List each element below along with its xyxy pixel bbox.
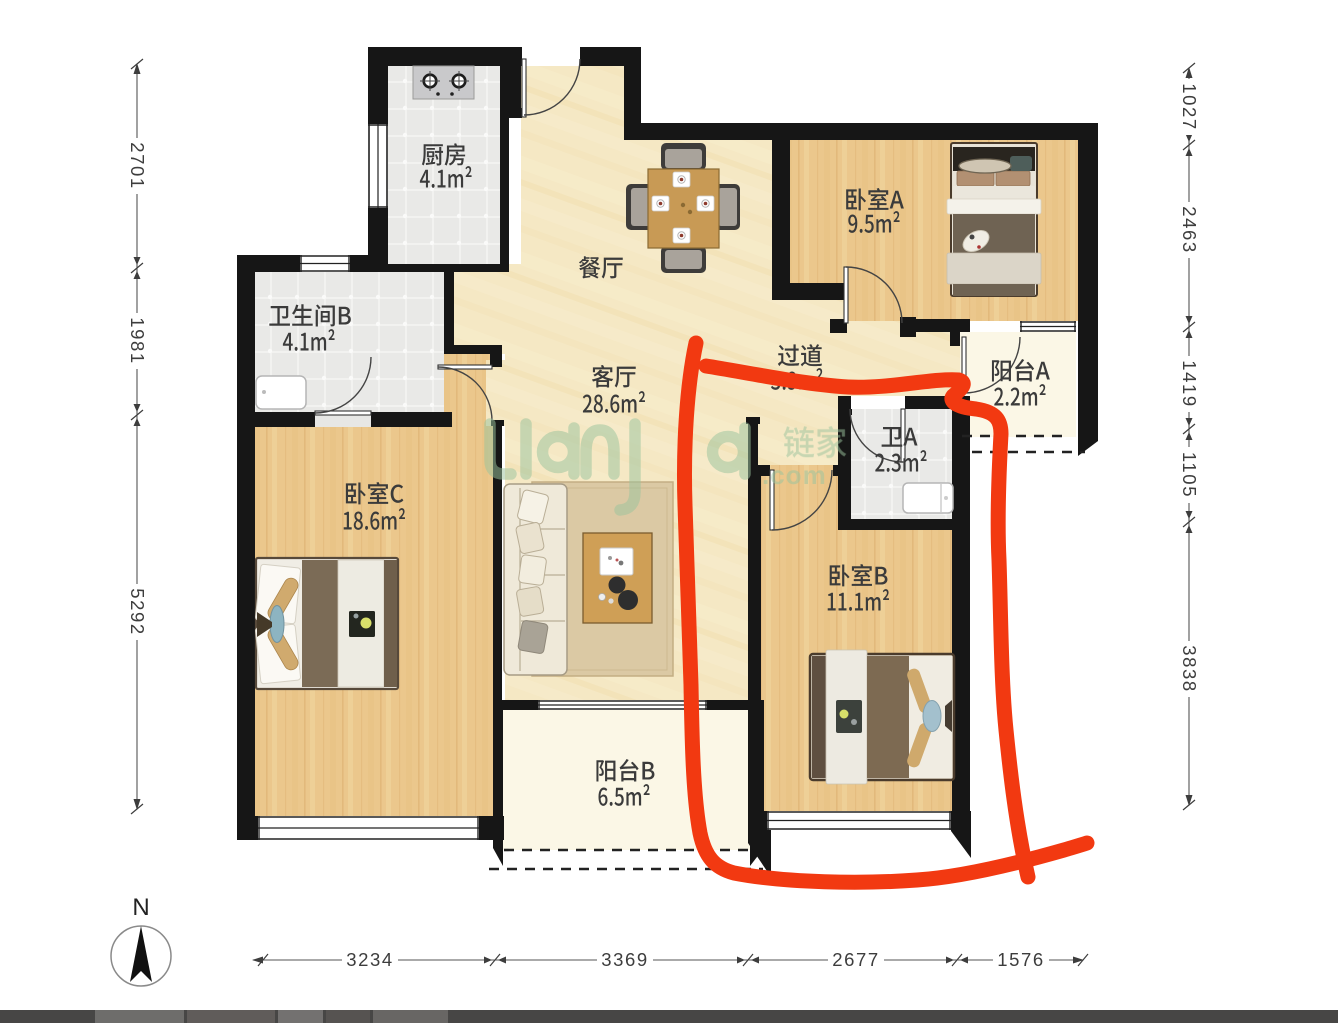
svg-text:3369: 3369 (601, 949, 649, 970)
svg-text:1105: 1105 (1179, 452, 1200, 498)
svg-text:3838: 3838 (1179, 645, 1200, 693)
svg-text:.com: .com (762, 460, 827, 490)
svg-text:1981: 1981 (127, 317, 148, 365)
svg-text:2463: 2463 (1179, 206, 1200, 254)
svg-text:5292: 5292 (127, 588, 148, 636)
svg-text:3234: 3234 (346, 949, 394, 970)
svg-text:2677: 2677 (832, 949, 880, 970)
svg-text:1419: 1419 (1179, 360, 1200, 408)
svg-text:2701: 2701 (127, 142, 148, 190)
svg-text:1027: 1027 (1179, 83, 1200, 131)
svg-text:N: N (132, 894, 149, 921)
svg-text:1576: 1576 (997, 949, 1045, 970)
